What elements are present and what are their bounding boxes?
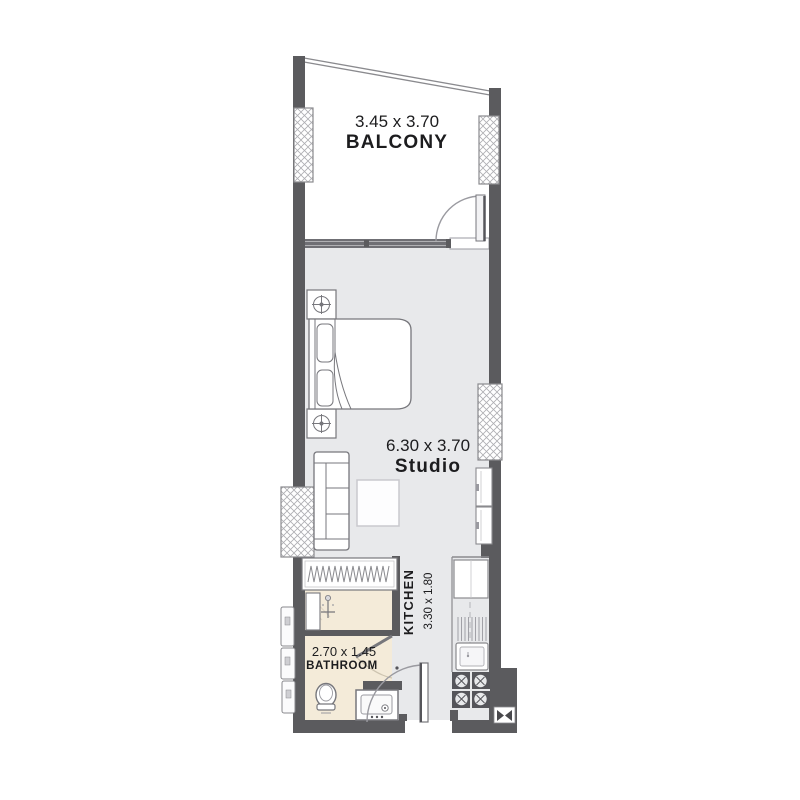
column-studio-right (478, 384, 502, 460)
bathroom-dimensions-label: 2.70 x 1.45 (312, 644, 376, 659)
toilet (316, 684, 336, 714)
service-units (281, 607, 295, 713)
balcony-dimensions-label: 3.45 x 3.70 (355, 112, 439, 131)
kitchen-dimensions-label: 3.30 x 1.80 (423, 573, 435, 630)
kitchen-sink (456, 643, 488, 670)
column-studio-left (281, 487, 314, 557)
column-balcony-right (479, 116, 499, 184)
door-stop-dot (395, 666, 398, 669)
wall-bottom-left (293, 720, 405, 733)
door-frame-right (450, 710, 458, 721)
bathroom-room-label: BATHROOM (306, 660, 378, 672)
window-wall (305, 238, 489, 249)
pillow (317, 370, 333, 406)
stove (452, 672, 490, 708)
studio-dimensions-label: 6.30 x 3.70 (386, 436, 470, 455)
wall-shower-partition (305, 630, 392, 636)
studio-room-label: Studio (395, 456, 461, 477)
shower-screen (306, 593, 320, 630)
floor-plan-drawing: 3.45 x 3.70 BALCONY 6.30 x 3.70 Studio 2… (0, 0, 800, 800)
vanity-sink (356, 690, 398, 720)
column-balcony-left (294, 108, 313, 182)
pillow (317, 324, 333, 362)
wardrobe (302, 558, 397, 590)
sofa (314, 452, 349, 550)
floor-plan: 3.45 x 3.70 BALCONY 6.30 x 3.70 Studio 2… (0, 0, 800, 800)
coffee-table (357, 480, 399, 526)
door-frame-left (399, 714, 407, 721)
kitchen-room-label: KITCHEN (401, 569, 416, 635)
duct-x-icon (494, 707, 515, 723)
tall-cabinets (476, 468, 492, 544)
balcony-room-label: BALCONY (346, 132, 448, 153)
wall-kitchen-stub (481, 543, 489, 558)
